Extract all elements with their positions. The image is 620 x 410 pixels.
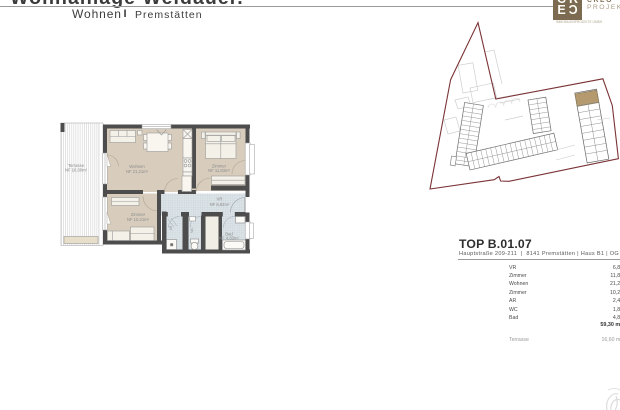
svg-text:NF 6,82m²: NF 6,82m² [210,202,230,207]
svg-text:NF 4,83m²: NF 4,83m² [219,236,239,241]
svg-text:VR: VR [217,197,223,202]
svg-text:NF 10,21m²: NF 10,21m² [127,217,150,222]
svg-text:NF 11,83m²: NF 11,83m² [208,168,230,173]
svg-text:NF 16,60m²: NF 16,60m² [65,168,88,173]
svg-text:WC: WC [190,227,194,233]
svg-text:NF 21,21m²: NF 21,21m² [126,169,149,174]
svg-text:AR: AR [169,225,173,230]
